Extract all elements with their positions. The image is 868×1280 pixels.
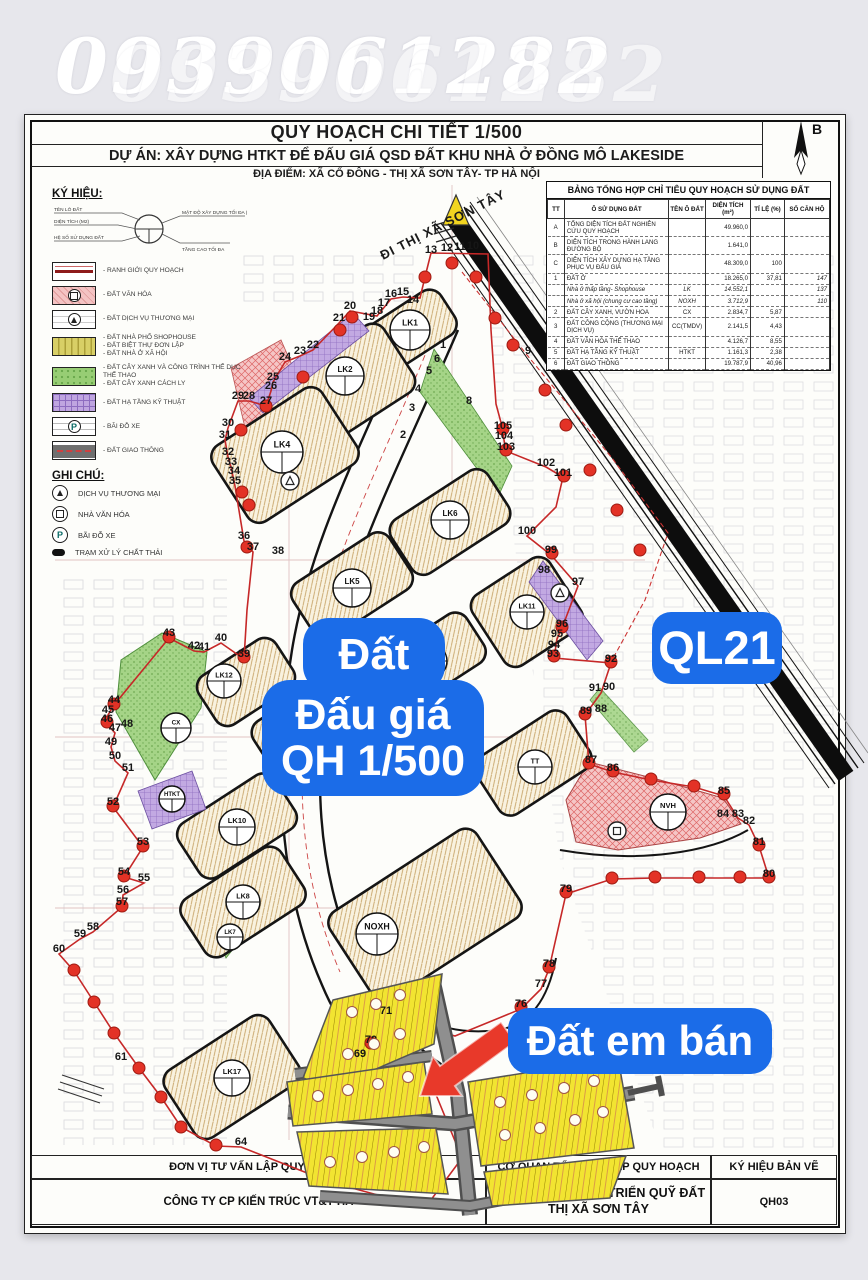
drawing-title: QUY HOẠCH CHI TIẾT 1/500 [31, 121, 762, 145]
summary-row: 4ĐẤT VĂN HÓA THỂ THAO4.126,78,55 [548, 336, 830, 347]
compass-north-label: B [812, 121, 822, 137]
legend-item: - ĐẤT VĂN HÓA [52, 286, 247, 305]
auction-label-main: Đấu giá QH 1/500 [262, 680, 484, 796]
title-compass-divider [762, 121, 763, 178]
for-sale-label-text: Đất em bán [527, 1018, 753, 1063]
note-label: BÃI ĐỖ XE [78, 531, 116, 540]
tri-icon [52, 485, 68, 501]
P-icon: P [52, 527, 68, 543]
drawing-code: QH03 [711, 1179, 837, 1225]
project-location: ĐỊA ĐIỂM: XÃ CỔ ĐÔNG - THỊ XÃ SƠN TÂY- T… [31, 167, 762, 180]
diagram-label-density: MẬT ĐỘ XÂY DỰNG TỐI ĐA (%) [182, 209, 247, 216]
commerce-swatch [52, 310, 96, 329]
summary-row: ATỔNG DIỆN TÍCH ĐẤT NGHIÊN CỨU QUY HOẠCH… [548, 219, 830, 237]
legend-item: - RANH GIỚI QUY HOẠCH [52, 262, 247, 281]
summary-row: Nhà ở thấp tầng- ShophouseLK14.552,1137 [548, 284, 830, 295]
legend-item-label: - ĐẤT HẠ TẦNG KỸ THUẬT [103, 399, 185, 407]
title-block: QUY HOẠCH CHI TIẾT 1/500 DỰ ÁN: XÂY DỰNG… [31, 121, 762, 178]
project-name: DỰ ÁN: XÂY DỰNG HTKT ĐỂ ĐẤU GIÁ QSD ĐẤT … [31, 145, 762, 167]
summary-row: CDIỆN TÍCH XÂY DỰNG HẠ TẦNG PHỤC VỤ ĐẤU … [548, 255, 830, 273]
green-swatch [52, 367, 96, 386]
legend-item: - ĐẤT GIAO THÔNG [52, 441, 247, 460]
watermark-phone-echo: 0939061282 [110, 30, 669, 119]
summary-row: 5ĐẤT HẠ TẦNG KỸ THUẬTHTKT1.161,32,38 [548, 347, 830, 358]
note-label: TRẠM XỬ LÝ CHẤT THẢI [75, 548, 162, 557]
lot-symbol-diagram: TÊN LÔ ĐẤT DIỆN TÍCH (M2) HỆ SỐ SỬ DỤNG … [52, 203, 247, 257]
note-item: PBÃI ĐỖ XE [52, 527, 247, 543]
legend-item: P- BÃI ĐỖ XE [52, 417, 247, 436]
summary-col-header: TÊN Ô ĐẤT [669, 200, 706, 219]
agency-name: TRUNG TÂM PHÁT TRIỂN QUỸ ĐẤT THỊ XÃ SƠN … [486, 1179, 711, 1225]
summary-row: 3ĐẤT CÔNG CỘNG (THƯƠNG MẠI DỊCH VỤ)CC(TM… [548, 318, 830, 336]
legend-heading: KÝ HIỆU: [52, 188, 247, 200]
summary-row: 6ĐẤT GIAO THÔNG19.787,940,96 [548, 358, 830, 369]
footer-title-bar: ĐƠN VỊ TƯ VẤN LẬP QUY HOẠCH CƠ QUAN TỔ C… [31, 1155, 837, 1225]
auction-label-line1: Đấu giá [295, 692, 450, 738]
diagram-label-lot-name: TÊN LÔ ĐẤT [54, 205, 82, 213]
shophouse-swatch [52, 337, 96, 356]
legend-item-label: - BÃI ĐỖ XE [103, 423, 140, 431]
agency-header: CƠ QUAN TỔ CHỨC LẬP QUY HOẠCH [486, 1155, 711, 1179]
landuse-summary-table: BẢNG TỔNG HỢP CHỈ TIÊU QUY HOẠCH SỬ DỤNG… [546, 181, 831, 371]
summary-col-header: DIỆN TÍCH (m²) [705, 200, 750, 219]
legend-item-label: - RANH GIỚI QUY HOẠCH [103, 267, 184, 275]
road-swatch [52, 441, 96, 460]
note-label: DỊCH VỤ THƯƠNG MẠI [78, 489, 160, 498]
note-label: NHÀ VĂN HÓA [78, 510, 130, 519]
summary-col-header: TT [548, 200, 565, 219]
consultant-name: CÔNG TY CP KIẾN TRÚC VT&T HÀ [31, 1179, 486, 1225]
diagram-label-far: HỆ SỐ SỬ DỤNG ĐẤT [54, 233, 104, 241]
note-item: TRẠM XỬ LÝ CHẤT THẢI [52, 548, 247, 557]
auction-label-dat: Đất [339, 631, 410, 679]
legend-item-label: - ĐẤT DỊCH VỤ THƯƠNG MẠI [103, 315, 194, 323]
watermark-phone: 0939061282 [55, 22, 614, 111]
drawing-code-header: KÝ HIỆU BẢN VẼ [711, 1155, 837, 1179]
note-items: DỊCH VỤ THƯƠNG MẠINHÀ VĂN HÓAPBÃI ĐỖ XET… [52, 485, 247, 557]
highway-label: QL21 [652, 612, 782, 684]
diagram-label-area: DIỆN TÍCH (M2) [54, 217, 89, 225]
note-item: NHÀ VĂN HÓA [52, 506, 247, 522]
summary-row: 1ĐẤT Ở18.265,037,81147 [548, 273, 830, 284]
summary-col-header: Ô SỬ DỤNG ĐẤT [564, 200, 668, 219]
note-item: DỊCH VỤ THƯƠNG MẠI [52, 485, 247, 501]
summary-col-header: TỈ LỆ (%) [751, 200, 785, 219]
summary-row: BDIỆN TÍCH TRONG HÀNH LANG ĐƯỜNG BỘ1.641… [548, 237, 830, 255]
consultant-header: ĐƠN VỊ TƯ VẤN LẬP QUY HOẠCH [31, 1155, 486, 1179]
legend-item-label: - ĐẤT VĂN HÓA [103, 291, 152, 299]
boundary-swatch [52, 262, 96, 281]
legend-item-label: - ĐẤT CÂY XANH VÀ CÔNG TRÌNH THỂ DỤC THỂ… [103, 364, 247, 389]
infra-swatch [52, 393, 96, 412]
waste-icon [52, 549, 65, 556]
legend-item: - ĐẤT HẠ TẦNG KỸ THUẬT [52, 393, 247, 412]
sq-icon [52, 506, 68, 522]
diagram-label-height: TẦNG CAO TỐI ĐA [182, 246, 225, 253]
summary-col-header: SỐ CĂN HỘ [784, 200, 829, 219]
legend-panel: KÝ HIỆU: TÊN LÔ ĐẤT DIỆN TÍCH (M2) HỆ SỐ… [52, 188, 247, 562]
auction-label-line2: QH 1/500 [281, 738, 465, 784]
compass-icon: B [768, 118, 840, 178]
legend-item-label: - ĐẤT NHÀ PHỐ SHOPHOUSE- ĐẤT BIỆT THỰ ĐƠ… [103, 334, 196, 359]
legend-item: - ĐẤT NHÀ PHỐ SHOPHOUSE- ĐẤT BIỆT THỰ ĐƠ… [52, 334, 247, 359]
notes-heading: GHI CHÚ: [52, 470, 247, 482]
summary-table-title: BẢNG TỔNG HỢP CHỈ TIÊU QUY HOẠCH SỬ DỤNG… [547, 182, 830, 199]
legend-item-label: - ĐẤT GIAO THÔNG [103, 447, 164, 455]
legend-item: - ĐẤT CÂY XANH VÀ CÔNG TRÌNH THỂ DỤC THỂ… [52, 364, 247, 389]
summary-row: 2ĐẤT CÂY XANH, VƯỜN HOACX2.834,75,87 [548, 307, 830, 318]
legend-item: - ĐẤT DỊCH VỤ THƯƠNG MẠI [52, 310, 247, 329]
highway-label-text: QL21 [658, 623, 776, 674]
culture-swatch [52, 286, 96, 305]
notes-panel: GHI CHÚ: DỊCH VỤ THƯƠNG MẠINHÀ VĂN HÓAPB… [52, 470, 247, 557]
parking-swatch: P [52, 417, 96, 436]
for-sale-label: Đất em bán [508, 1008, 772, 1074]
summary-row: Nhà ở xã hội (chung cư cao tầng)NOXH3.71… [548, 295, 830, 306]
legend-items: - RANH GIỚI QUY HOẠCH- ĐẤT VĂN HÓA- ĐẤT … [52, 262, 247, 460]
page: 0939061282 0939061282 QUY HOẠCH CHI TIẾT… [0, 0, 868, 1280]
